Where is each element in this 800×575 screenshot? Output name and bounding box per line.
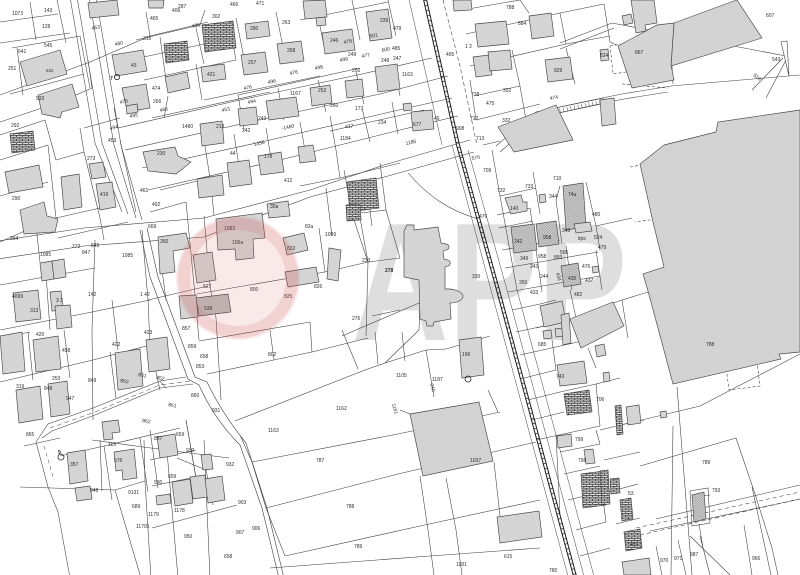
svg-text:272: 272 <box>72 244 81 250</box>
svg-text:294: 294 <box>10 236 19 242</box>
svg-text:677: 677 <box>413 122 422 128</box>
svg-text:859: 859 <box>188 344 197 350</box>
svg-text:706: 706 <box>596 397 605 403</box>
svg-text:829: 829 <box>554 68 563 74</box>
svg-text:789: 789 <box>702 460 711 466</box>
svg-text:793: 793 <box>712 488 721 494</box>
svg-text:9: 9 <box>58 450 61 456</box>
svg-text:230: 230 <box>157 151 166 157</box>
svg-text:435: 435 <box>568 276 577 282</box>
svg-text:251: 251 <box>8 66 17 72</box>
svg-text:319: 319 <box>16 384 25 390</box>
svg-text:798: 798 <box>578 458 587 464</box>
svg-text:290: 290 <box>12 196 21 202</box>
svg-text:849: 849 <box>91 243 100 249</box>
svg-text:1480: 1480 <box>182 124 193 130</box>
svg-text:948: 948 <box>90 488 99 494</box>
svg-text:958: 958 <box>538 254 547 260</box>
svg-text:453: 453 <box>108 138 117 144</box>
svg-text:743: 743 <box>556 374 565 380</box>
svg-text:412: 412 <box>284 178 293 184</box>
svg-text:987: 987 <box>690 552 699 558</box>
svg-text:853: 853 <box>196 364 205 370</box>
svg-text:849: 849 <box>88 378 97 384</box>
svg-text:1037: 1037 <box>470 458 481 464</box>
svg-text:44: 44 <box>230 151 236 157</box>
svg-text:1085: 1085 <box>40 252 51 258</box>
svg-text:475: 475 <box>486 101 495 107</box>
svg-text:1167: 1167 <box>290 91 301 97</box>
svg-text:738: 738 <box>471 92 480 98</box>
svg-text:848: 848 <box>44 386 53 392</box>
svg-text:1162: 1162 <box>336 406 347 412</box>
svg-text:243: 243 <box>530 264 539 270</box>
svg-text:713: 713 <box>476 136 485 142</box>
svg-text:495: 495 <box>446 52 455 58</box>
svg-text:113: 113 <box>108 442 116 448</box>
svg-text:787: 787 <box>316 458 325 464</box>
svg-text:865: 865 <box>26 432 35 438</box>
svg-text:292: 292 <box>11 123 20 129</box>
svg-text:480: 480 <box>592 212 601 218</box>
svg-text:931: 931 <box>212 408 221 414</box>
svg-text:479: 479 <box>598 245 607 251</box>
svg-text:847: 847 <box>82 250 91 256</box>
svg-text:543: 543 <box>772 57 781 63</box>
svg-text:11791: 11791 <box>136 524 150 530</box>
svg-text:788: 788 <box>506 5 515 11</box>
svg-text:659: 659 <box>176 432 185 438</box>
svg-text:1 42: 1 42 <box>140 292 150 298</box>
svg-text:140: 140 <box>510 206 519 212</box>
svg-text:710: 710 <box>553 176 562 182</box>
svg-text:313: 313 <box>30 308 39 314</box>
svg-text:tips: tips <box>578 236 586 242</box>
svg-text:247: 247 <box>393 56 402 62</box>
svg-text:278: 278 <box>385 268 394 274</box>
svg-text:332: 332 <box>503 88 512 94</box>
svg-text:733: 733 <box>525 184 534 190</box>
svg-text:74u: 74u <box>568 192 577 198</box>
svg-text:30a: 30a <box>270 204 279 210</box>
svg-text:43: 43 <box>131 63 137 69</box>
svg-text:437: 437 <box>585 278 594 284</box>
svg-text:253: 253 <box>52 376 61 382</box>
svg-text:244: 244 <box>540 274 549 280</box>
svg-text:867: 867 <box>635 50 644 56</box>
svg-text:607: 607 <box>766 13 775 19</box>
svg-text:485: 485 <box>392 46 401 52</box>
svg-text:788: 788 <box>706 342 715 348</box>
svg-text:4099: 4099 <box>12 294 23 300</box>
svg-text:802: 802 <box>268 352 277 358</box>
svg-text:3 3: 3 3 <box>56 298 63 304</box>
svg-text:242: 242 <box>514 239 523 245</box>
svg-text:a17: a17 <box>345 124 354 130</box>
svg-text:709: 709 <box>483 168 492 174</box>
svg-text:250: 250 <box>352 68 361 74</box>
svg-text:458: 458 <box>62 348 71 354</box>
svg-text:246: 246 <box>330 38 339 44</box>
svg-text:908: 908 <box>456 126 465 132</box>
svg-text:857: 857 <box>182 326 191 332</box>
svg-text:357: 357 <box>70 462 79 468</box>
svg-text:53: 53 <box>628 491 634 497</box>
svg-text:476: 476 <box>582 264 591 270</box>
svg-text:906: 906 <box>252 526 261 532</box>
svg-text:143: 143 <box>44 8 53 14</box>
svg-text:545: 545 <box>44 43 53 49</box>
svg-text:860: 860 <box>191 393 200 399</box>
svg-text:799: 799 <box>575 437 584 443</box>
svg-text:658: 658 <box>200 354 209 360</box>
svg-text:1178: 1178 <box>174 508 185 514</box>
svg-text:1085: 1085 <box>122 253 133 259</box>
svg-text:884: 884 <box>518 21 527 27</box>
svg-text:712: 712 <box>470 116 479 122</box>
svg-text:239: 239 <box>380 18 389 24</box>
svg-text:233: 233 <box>362 258 371 264</box>
svg-text:971: 971 <box>674 556 683 562</box>
svg-text:966: 966 <box>752 556 761 562</box>
svg-text:178: 178 <box>264 154 273 160</box>
svg-text:128: 128 <box>42 24 51 30</box>
svg-text:930: 930 <box>154 480 163 486</box>
svg-text:346: 346 <box>562 228 571 234</box>
svg-text:9131: 9131 <box>128 490 139 496</box>
svg-text:350: 350 <box>160 239 169 245</box>
svg-text:1099: 1099 <box>325 232 336 238</box>
svg-text:266: 266 <box>153 99 162 105</box>
svg-text:1 2: 1 2 <box>465 44 472 50</box>
svg-text:685: 685 <box>538 342 547 348</box>
svg-text:1105: 1105 <box>396 373 407 379</box>
svg-text:780: 780 <box>549 568 558 574</box>
svg-text:349: 349 <box>520 256 529 262</box>
svg-text:476: 476 <box>479 214 488 220</box>
svg-text:932: 932 <box>226 462 235 468</box>
svg-text:344: 344 <box>549 194 558 200</box>
svg-text:903: 903 <box>238 500 247 506</box>
svg-text:260: 260 <box>330 103 339 109</box>
svg-text:423: 423 <box>144 330 153 336</box>
svg-text:950: 950 <box>184 534 193 540</box>
svg-text:466: 466 <box>230 2 239 8</box>
svg-text:615: 615 <box>504 554 513 560</box>
svg-text:857: 857 <box>154 436 163 442</box>
svg-text:1073: 1073 <box>12 11 23 17</box>
svg-text:330: 330 <box>472 274 481 280</box>
svg-text:658: 658 <box>224 554 233 560</box>
svg-text:824: 824 <box>600 53 609 59</box>
svg-text:659: 659 <box>168 474 177 480</box>
svg-text:788: 788 <box>346 504 355 510</box>
svg-text:1181: 1181 <box>456 562 467 568</box>
svg-text:482: 482 <box>574 292 583 298</box>
svg-text:505: 505 <box>560 250 569 256</box>
svg-text:248: 248 <box>381 58 390 64</box>
svg-text:947: 947 <box>66 396 75 402</box>
svg-text:257: 257 <box>248 60 257 66</box>
svg-text:252: 252 <box>318 88 327 94</box>
svg-text:522: 522 <box>46 68 54 73</box>
svg-text:471: 471 <box>256 1 265 7</box>
svg-text:263: 263 <box>282 20 291 26</box>
svg-text:689: 689 <box>132 504 141 510</box>
svg-text:177: 177 <box>355 106 364 112</box>
svg-text:789: 789 <box>354 544 363 550</box>
svg-text:196: 196 <box>462 352 471 358</box>
svg-text:474: 474 <box>152 86 161 92</box>
svg-text:287: 287 <box>178 4 187 10</box>
svg-text:350: 350 <box>519 280 528 286</box>
svg-text:280: 280 <box>250 26 259 32</box>
svg-text:930: 930 <box>186 448 195 454</box>
svg-text:419: 419 <box>100 192 109 198</box>
svg-text:461: 461 <box>140 188 149 194</box>
svg-text:142: 142 <box>88 292 97 298</box>
svg-text:958: 958 <box>543 235 552 241</box>
svg-text:669: 669 <box>148 224 157 230</box>
svg-text:234: 234 <box>378 120 387 126</box>
svg-text:1163: 1163 <box>268 428 279 434</box>
svg-text:826: 826 <box>314 284 323 290</box>
svg-text:1184: 1184 <box>340 136 351 142</box>
svg-text:533: 533 <box>36 96 45 102</box>
svg-text:213: 213 <box>216 124 225 130</box>
svg-text:332: 332 <box>502 118 511 124</box>
svg-text:732: 732 <box>497 188 506 194</box>
svg-text:421: 421 <box>207 72 216 78</box>
svg-text:249: 249 <box>348 52 357 58</box>
svg-text:82a: 82a <box>305 224 314 230</box>
svg-text:492: 492 <box>152 202 161 208</box>
svg-text:576: 576 <box>114 458 123 464</box>
svg-text:46: 46 <box>434 116 440 122</box>
svg-text:433: 433 <box>530 290 539 296</box>
svg-text:243: 243 <box>258 116 267 122</box>
svg-text:302: 302 <box>212 14 221 20</box>
svg-text:422: 422 <box>112 342 121 348</box>
svg-text:524: 524 <box>594 235 603 241</box>
svg-text:1163: 1163 <box>402 72 413 78</box>
svg-text:242: 242 <box>242 128 251 134</box>
svg-text:641: 641 <box>18 49 27 55</box>
svg-text:316: 316 <box>143 36 152 42</box>
svg-text:276: 276 <box>352 316 361 322</box>
svg-text:273: 273 <box>87 156 96 162</box>
svg-text:420: 420 <box>36 332 45 338</box>
svg-text:970: 970 <box>660 558 669 564</box>
svg-text:258: 258 <box>287 48 296 54</box>
svg-text:451: 451 <box>630 542 639 548</box>
svg-text:479: 479 <box>393 26 402 32</box>
svg-text:907: 907 <box>236 530 245 536</box>
svg-text:7: 7 <box>110 76 113 82</box>
svg-text:1179: 1179 <box>148 512 159 518</box>
svg-text:465: 465 <box>150 16 159 22</box>
